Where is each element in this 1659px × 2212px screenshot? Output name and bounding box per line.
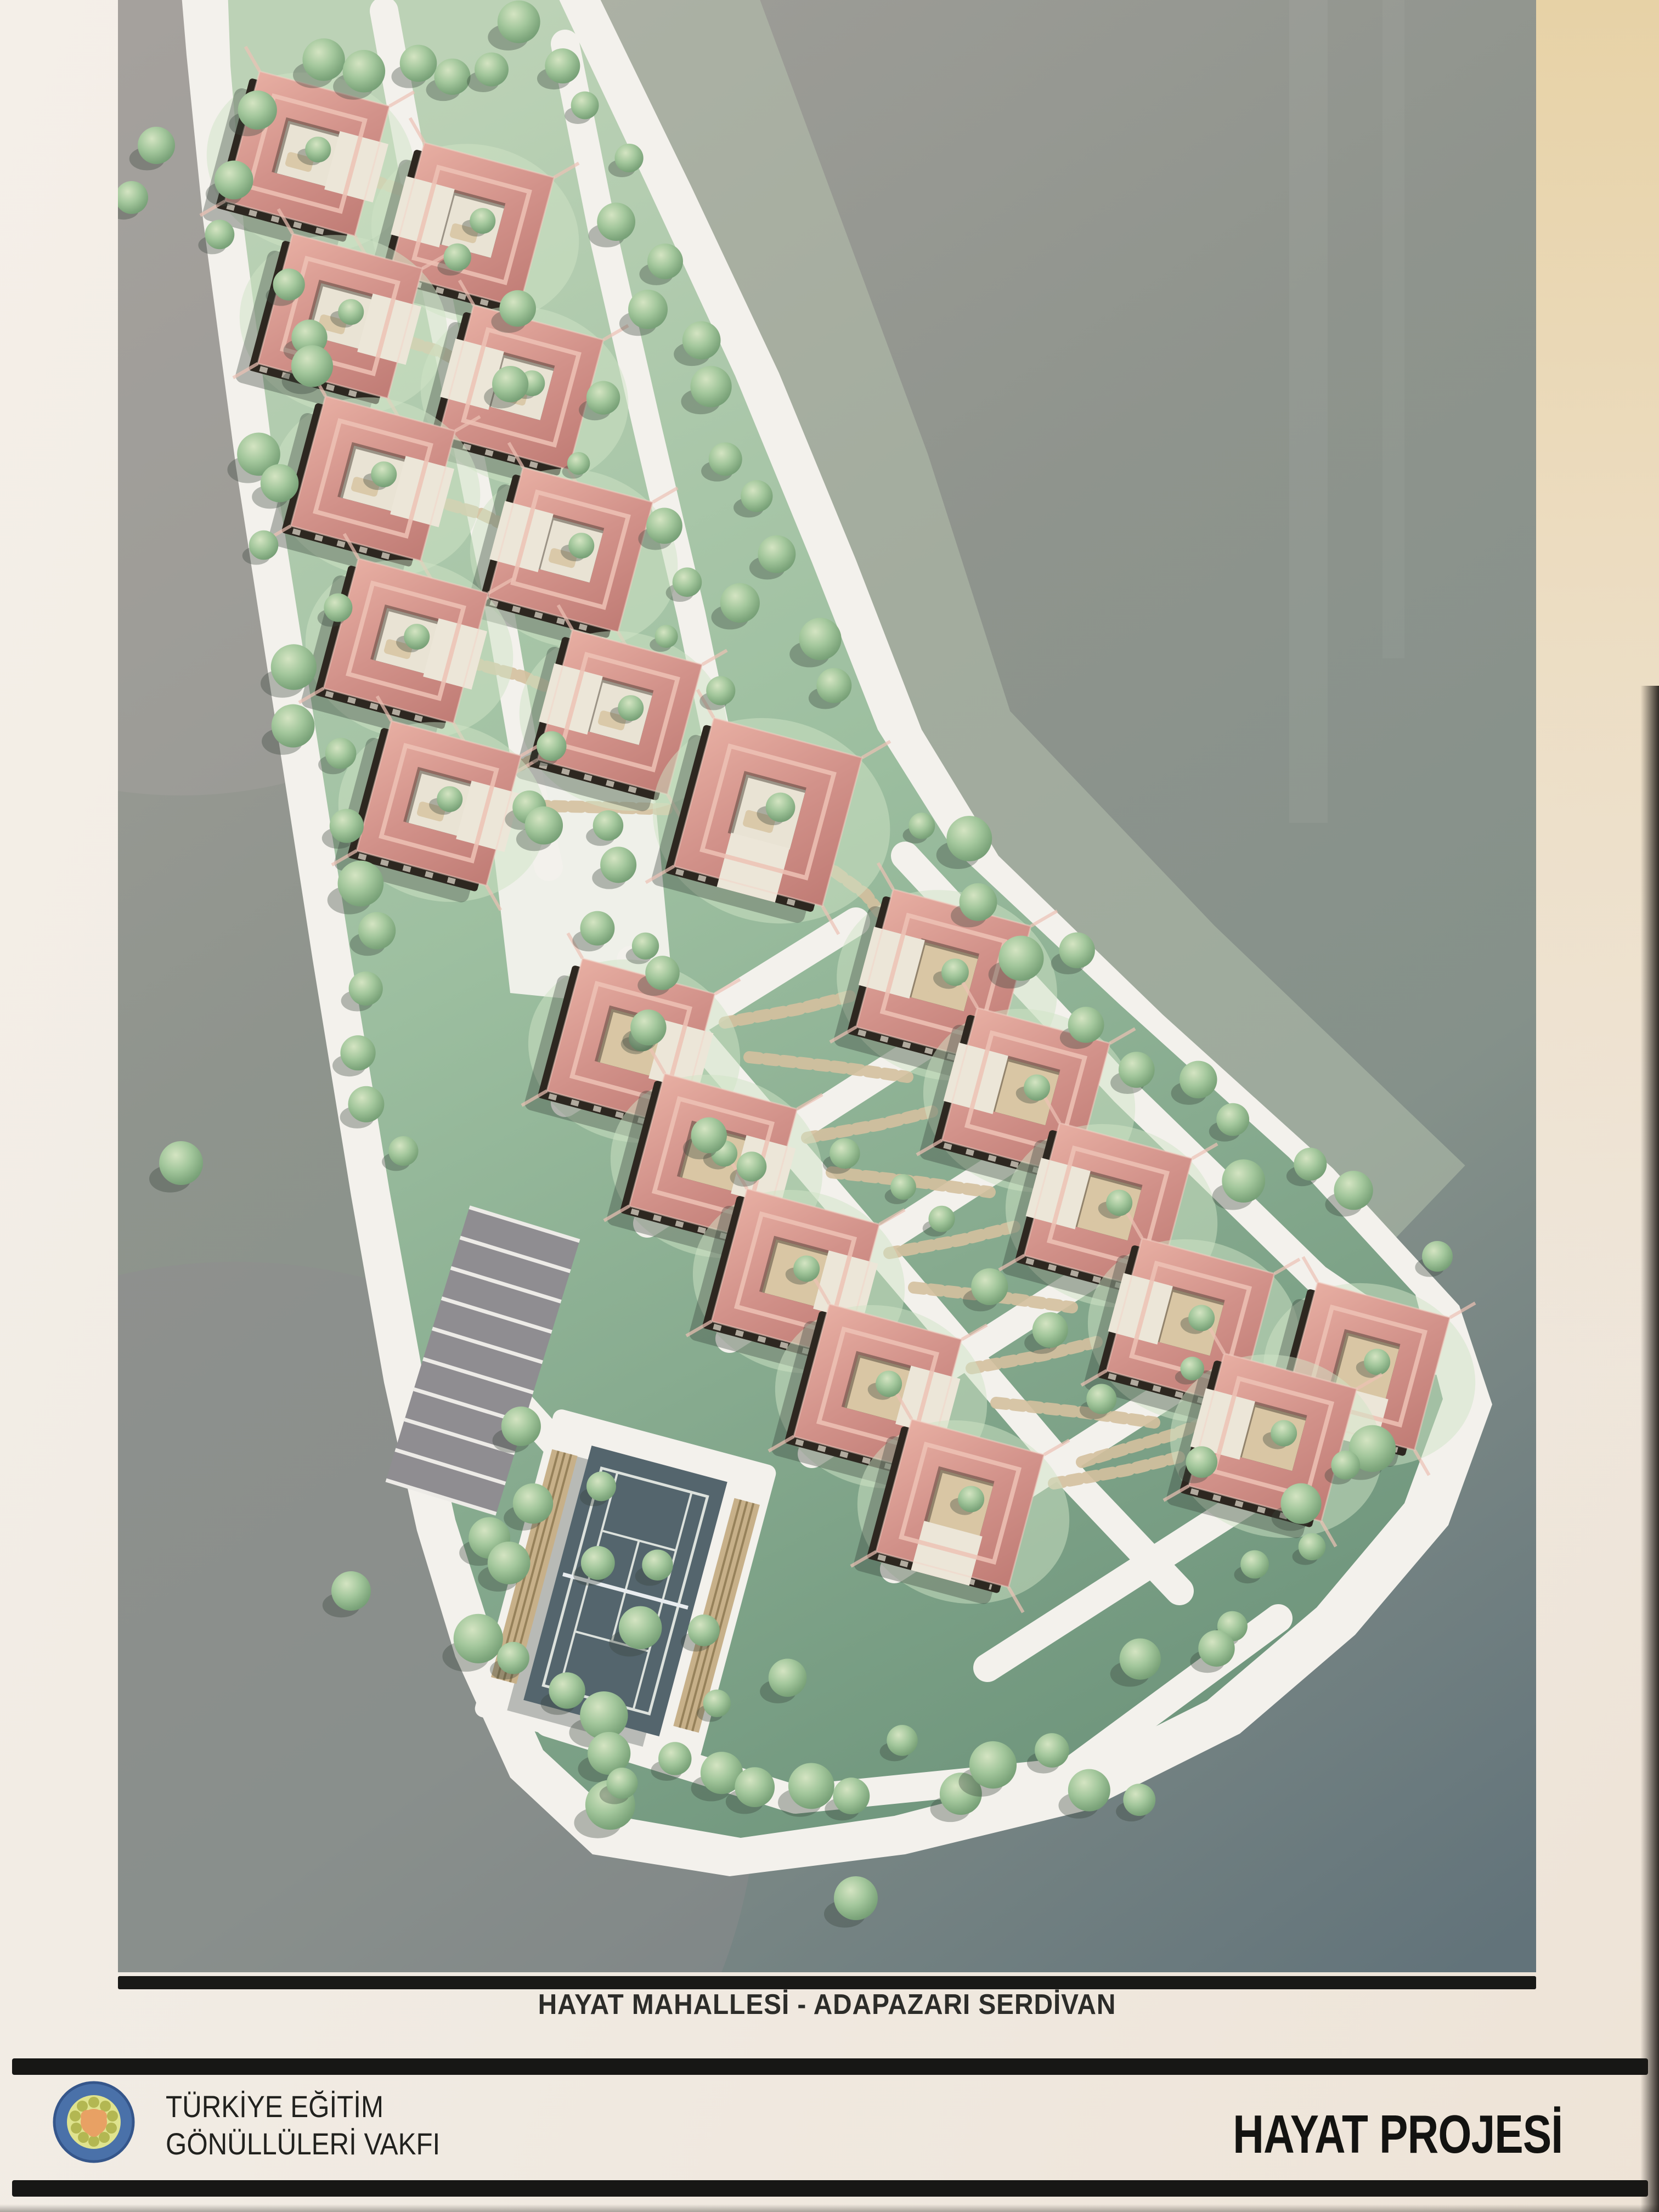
divider-top bbox=[12, 2058, 1648, 2075]
caption: HAYAT MAHALLESİ - ADAPAZARI SERDİVAN bbox=[174, 1988, 1479, 2021]
organization-line1: TÜRKİYE EĞİTİM bbox=[166, 2088, 440, 2125]
photo-bottom-shade bbox=[0, 2204, 1659, 2212]
image-bottom-border bbox=[118, 1976, 1536, 1989]
divider-bottom bbox=[12, 2180, 1648, 2197]
tegv-logo-icon bbox=[52, 2080, 136, 2164]
organization-line2: GÖNÜLLÜLERİ VAKFI bbox=[166, 2125, 440, 2163]
organization-name: TÜRKİYE EĞİTİM GÖNÜLLÜLERİ VAKFI bbox=[166, 2088, 440, 2163]
paper-warm-tint bbox=[1531, 0, 1659, 1372]
project-title: HAYAT PROJESİ bbox=[1233, 2103, 1562, 2165]
site-plan-rendering bbox=[118, 0, 1536, 1972]
photographed-page: HAYAT MAHALLESİ - ADAPAZARI SERDİVAN TÜR… bbox=[0, 0, 1659, 2212]
photo-edge-shadow bbox=[1640, 686, 1659, 2212]
